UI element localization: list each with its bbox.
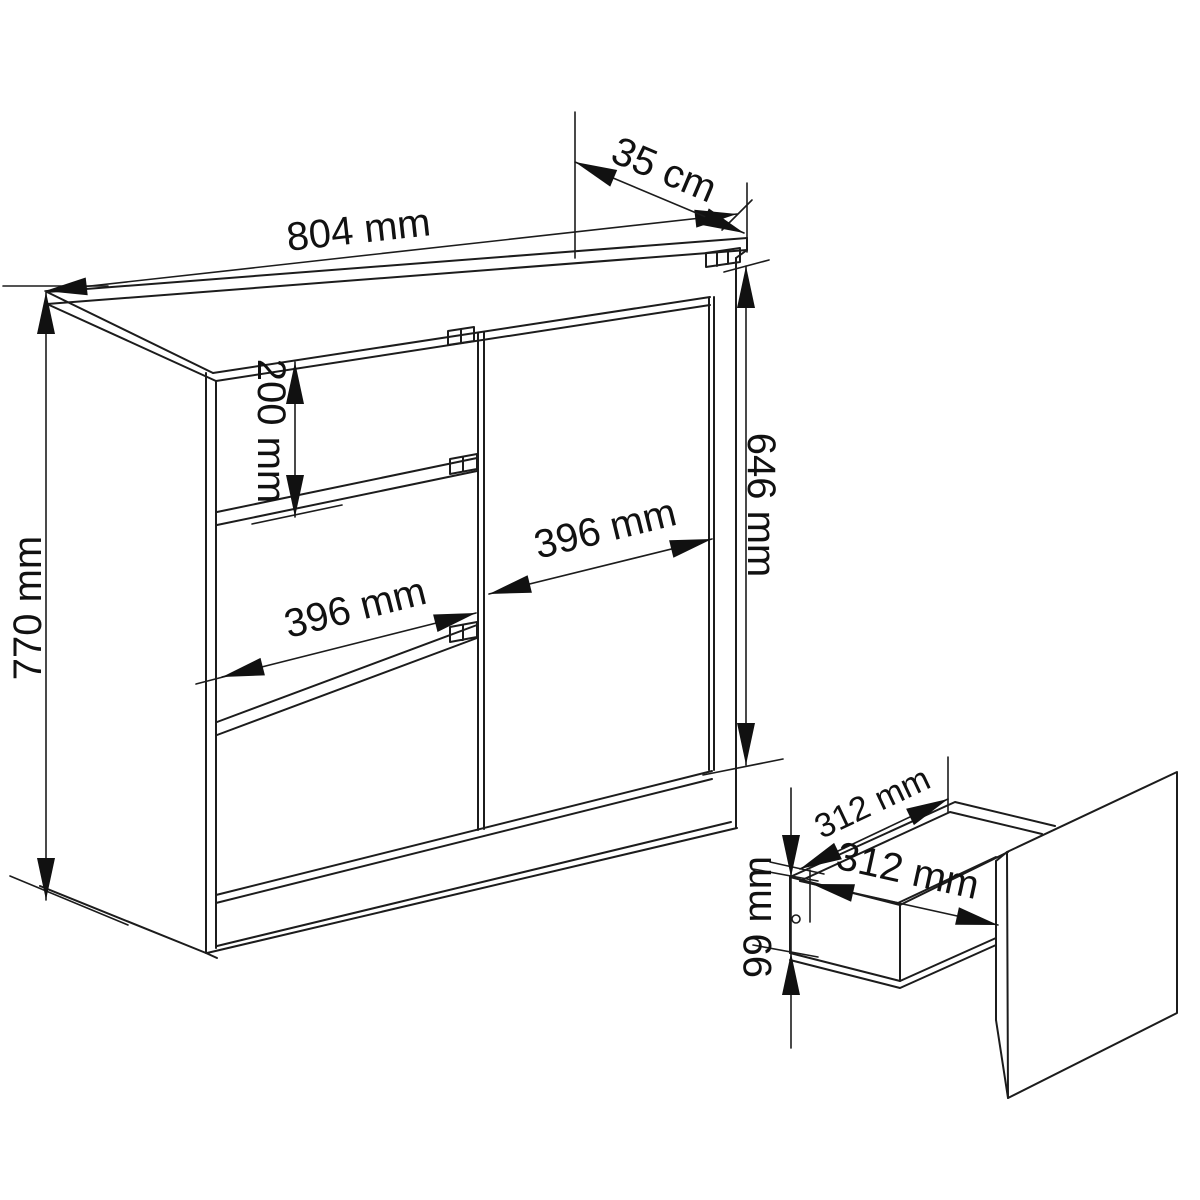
dimension-drawer-inner-width-312: 312 mm <box>810 834 998 925</box>
dimension-drawer-width-396: 396 mm <box>196 569 476 684</box>
dimension-width-804: 804 mm <box>3 200 752 295</box>
dim-label-door-396: 396 mm <box>530 490 681 567</box>
dimension-drawer-height-99: 99 mm <box>736 788 818 1048</box>
dim-label-99: 99 mm <box>736 856 780 978</box>
cabinet-base <box>207 771 737 953</box>
dim-label-drawer-396: 396 mm <box>280 569 431 647</box>
dimension-depth-35: 35 cm <box>575 112 747 258</box>
dim-label-312-depth: 312 mm <box>809 759 936 846</box>
drawer-front-panel <box>996 772 1177 1098</box>
dimension-door-width-396: 396 mm <box>489 490 714 594</box>
dim-label-646: 646 mm <box>739 433 783 578</box>
drawer-gap-2 <box>217 625 477 735</box>
dimension-height-770: 770 mm <box>6 292 128 925</box>
dim-label-770: 770 mm <box>6 536 50 681</box>
dimension-top-drawer-200: 200 mm <box>249 359 342 524</box>
dim-label-200: 200 mm <box>249 359 293 504</box>
door-panel <box>709 258 736 827</box>
cabinet-top-panel <box>47 238 747 381</box>
furniture-dimension-diagram: 804 mm 35 cm 770 mm 200 mm 646 mm <box>0 0 1200 1200</box>
diagram-canvas: 804 mm 35 cm 770 mm 200 mm 646 mm <box>0 0 1200 1200</box>
cabinet-left-side <box>40 373 217 958</box>
cabinet-center-divider <box>478 332 484 830</box>
dim-label-312-width: 312 mm <box>832 834 983 908</box>
